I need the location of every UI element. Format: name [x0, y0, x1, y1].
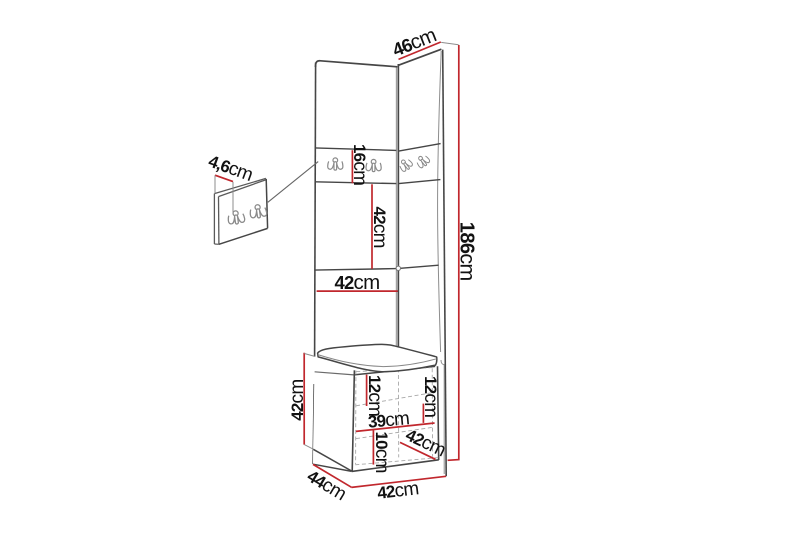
svg-text:42cm: 42cm: [335, 271, 380, 294]
svg-text:10cm: 10cm: [371, 432, 392, 473]
svg-text:12cm: 12cm: [420, 376, 441, 417]
svg-text:42cm: 42cm: [376, 478, 419, 504]
svg-text:16cm: 16cm: [349, 144, 370, 185]
svg-text:12cm: 12cm: [364, 375, 385, 416]
svg-text:42cm: 42cm: [369, 207, 390, 248]
svg-text:42cm: 42cm: [287, 380, 308, 421]
svg-text:186cm: 186cm: [455, 222, 479, 281]
svg-text:39cm: 39cm: [367, 408, 410, 433]
